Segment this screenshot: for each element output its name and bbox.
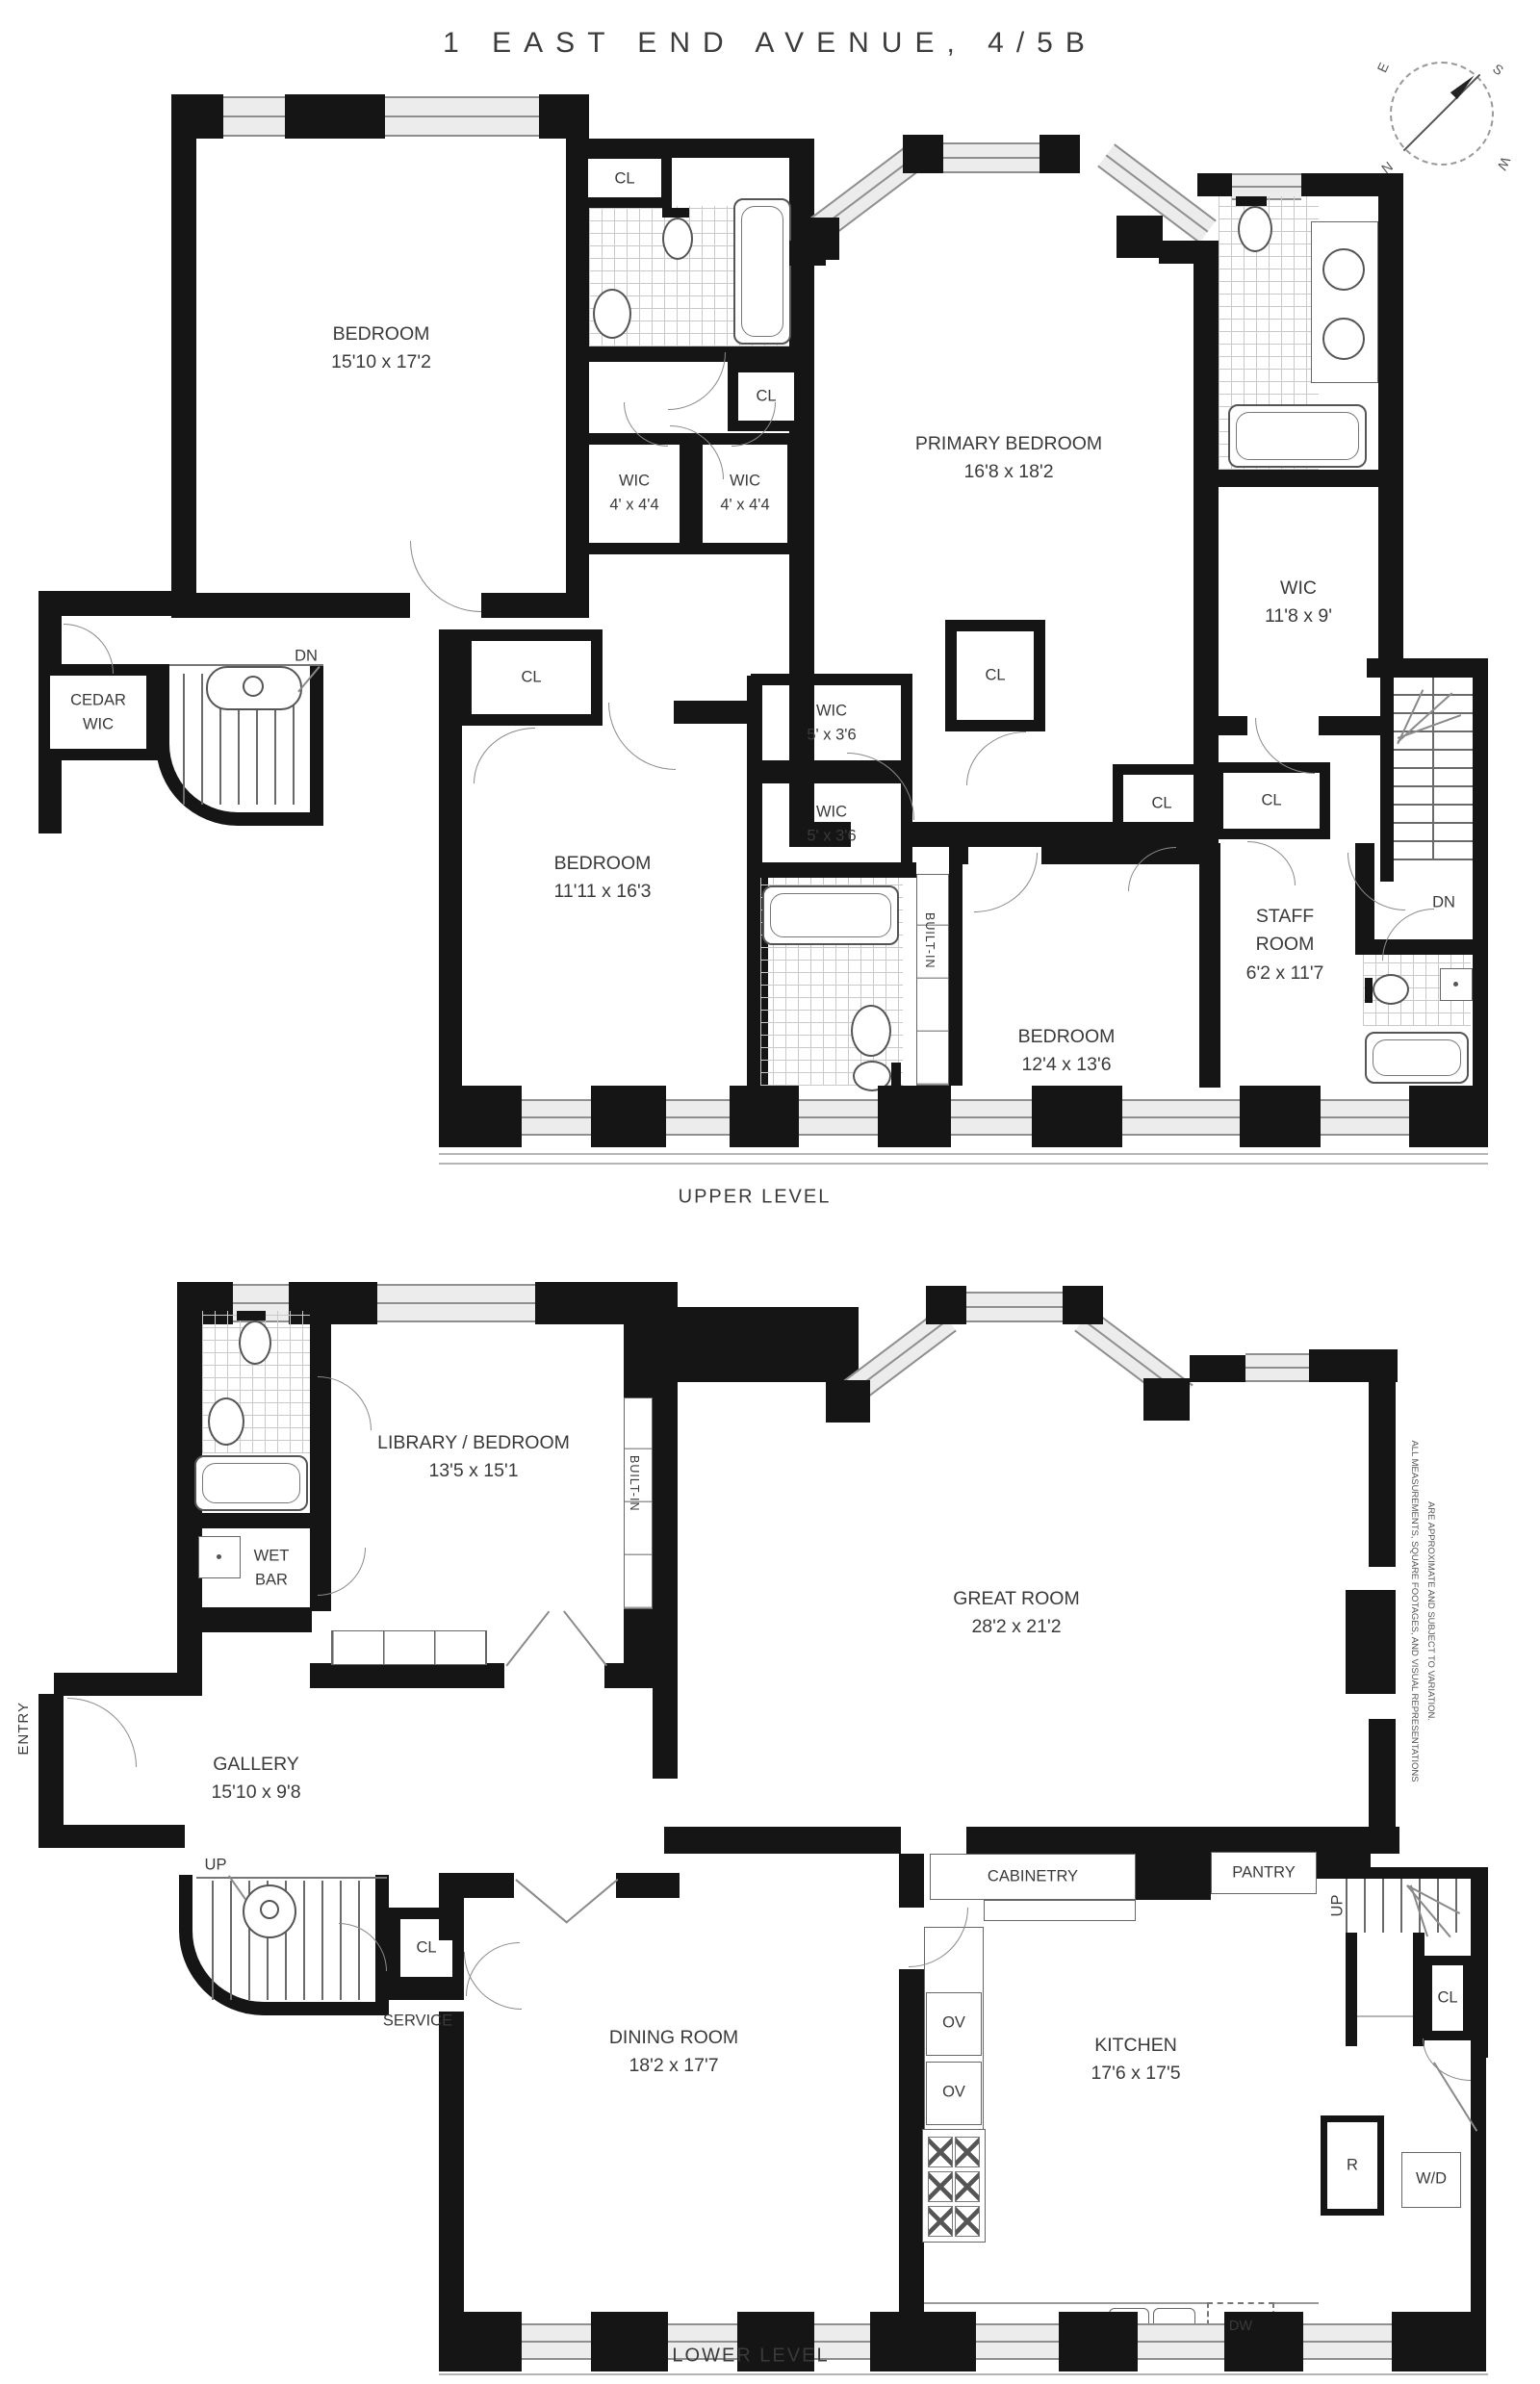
wic-label: WIC5' x 3'6 (807, 800, 856, 848)
wall (1380, 678, 1394, 882)
wall (1059, 2312, 1138, 2371)
door-arc (64, 624, 114, 674)
door-arc (1382, 909, 1434, 961)
wall (38, 1825, 185, 1848)
stair-label-up: UP (1326, 1895, 1350, 1917)
room-label-library-bedroom: LIBRARY / BEDROOM13'5 x 15'1 (377, 1429, 570, 1486)
window-sill (439, 1163, 1488, 1165)
level-label-lower: LOWER LEVEL (672, 2346, 829, 2368)
wall (949, 843, 962, 1086)
window (1245, 1353, 1309, 1382)
wall (624, 1309, 653, 1397)
wall (903, 135, 943, 173)
wall (1199, 843, 1220, 1088)
toilet (1373, 974, 1409, 1005)
burner-icon (928, 2171, 953, 2202)
door-arc (318, 1548, 366, 1596)
fireplace (1346, 1590, 1396, 1694)
wall (591, 1086, 666, 1147)
toilet-tank (662, 208, 689, 218)
room-label-bedroom-2: BEDROOM11'11 x 16'3 (553, 850, 651, 907)
wall (1143, 1378, 1190, 1421)
wall (481, 593, 589, 618)
stair-label-dn: DN (1432, 891, 1455, 915)
bathtub (1228, 404, 1367, 468)
level-label-upper: UPPER LEVEL (679, 1187, 832, 1209)
wall (539, 94, 589, 139)
door-arc (1423, 2038, 1471, 2081)
compass-e: E (1373, 60, 1391, 74)
wall (1159, 241, 1219, 264)
pantry-label: PANTRY (1232, 1861, 1295, 1885)
door-leaf (515, 1879, 568, 1923)
wall (38, 1694, 64, 1829)
wall (653, 1382, 678, 1669)
compass-s: S (1490, 61, 1506, 78)
window (522, 1099, 591, 1136)
room-label-great-room: GREAT ROOM28'2 x 21'2 (953, 1585, 1079, 1642)
cabinetry (984, 1900, 1136, 1921)
wall (1301, 173, 1390, 196)
wall (789, 241, 826, 266)
window-sill (439, 1153, 1488, 1155)
wall (878, 1086, 951, 1147)
closet-label: CL (416, 1936, 436, 1961)
bathtub (762, 885, 899, 945)
wall (439, 1086, 522, 1147)
wall (870, 2312, 976, 2371)
wall (926, 1286, 966, 1324)
bathtub (1365, 1032, 1469, 1084)
bathtub (733, 198, 791, 345)
stair-newel (260, 1900, 279, 1919)
toilet-tank (1236, 196, 1267, 206)
wall (1136, 1848, 1211, 1900)
wall (604, 1663, 654, 1688)
closet-label: CL (1437, 1987, 1457, 2011)
floor-plan-canvas: 1 EAST END AVENUE, 4/5B N E S W (0, 0, 1540, 2384)
window (1122, 1099, 1240, 1136)
door-arc (668, 352, 726, 410)
wall (1219, 716, 1247, 735)
wall (1219, 470, 1378, 487)
wall (38, 616, 62, 666)
toilet-tank (1365, 978, 1373, 1003)
toilet (1238, 206, 1272, 252)
stair-newel (243, 676, 264, 697)
stair-line (1357, 2015, 1413, 2017)
window-sill (439, 2373, 1488, 2375)
entry-arrow-icon (42, 1715, 64, 1740)
door-arc (67, 1698, 137, 1767)
stair-label-up: UP (205, 1854, 227, 1878)
washer-dryer-label: W/D (1416, 2167, 1447, 2192)
burner-icon (928, 2206, 953, 2237)
wall (899, 1854, 924, 1908)
wall (616, 1873, 680, 1898)
window (799, 1099, 878, 1136)
door-arc (410, 541, 481, 612)
wic-label: WIC4' x 4'4 (720, 469, 769, 517)
window (223, 96, 285, 137)
wall (177, 1607, 312, 1632)
wall (1346, 1933, 1357, 2046)
window (976, 2323, 1059, 2360)
built-in-cabinet (916, 874, 949, 1086)
wall (439, 2012, 464, 2314)
room-label-primary-bedroom: PRIMARY BEDROOM16'8 x 18'2 (915, 430, 1102, 487)
wall (1392, 2312, 1486, 2371)
bay-window (926, 142, 1045, 173)
room-label-cedar-wic: CEDARWIC (70, 688, 126, 736)
wall (591, 2312, 668, 2371)
disclaimer-text: ARE APPROXIMATE AND SUBJECT TO VARIATION… (1397, 1385, 1439, 1837)
window (1138, 2323, 1224, 2360)
sink (1322, 248, 1365, 291)
bathtub (194, 1455, 308, 1511)
wall (38, 591, 173, 616)
door-leaf (566, 1879, 619, 1923)
door-arc (1247, 841, 1296, 885)
closet-label: CL (985, 664, 1005, 688)
wall (439, 629, 462, 1086)
wall (1190, 1355, 1245, 1382)
stair-rail (1432, 678, 1434, 860)
sink (593, 289, 631, 339)
window-seat (331, 1630, 487, 1665)
wall (1471, 2058, 1486, 2312)
wall (1409, 1086, 1488, 1147)
wall (1193, 262, 1219, 843)
wall (54, 1673, 191, 1696)
room-label-bedroom-1: BEDROOM15'10 x 17'2 (331, 320, 431, 377)
built-in-label: BUILT-IN (628, 1455, 641, 1511)
wall (1309, 1349, 1398, 1382)
burner-icon (955, 2137, 980, 2167)
wall (664, 1827, 901, 1854)
wall (1032, 1086, 1122, 1147)
wic-label: WIC4' x 4'4 (609, 469, 658, 517)
closet-label: CL (614, 167, 634, 192)
wall (1346, 1867, 1488, 1879)
wall (674, 701, 751, 724)
wall (624, 1609, 653, 1665)
toilet (239, 1320, 271, 1365)
burner-icon (928, 2137, 953, 2167)
wall (310, 1663, 504, 1688)
wall (899, 1969, 924, 2314)
oven-label: OV (942, 2012, 965, 2036)
window (522, 2323, 591, 2360)
entry-label: ENTRY (15, 1702, 32, 1756)
closet-label: CL (756, 385, 776, 409)
window (377, 1284, 535, 1322)
door-arc (608, 703, 676, 770)
window (951, 1099, 1032, 1136)
wall (653, 1307, 859, 1382)
door-arc (318, 1376, 372, 1430)
room-label-kitchen: KITCHEN17'6 x 17'5 (1091, 2032, 1180, 2089)
wall (439, 2312, 522, 2371)
toilet (662, 218, 693, 260)
door-leaf (505, 1611, 550, 1667)
built-in-label: BUILT-IN (923, 912, 937, 968)
stair-label-dn: DN (295, 645, 318, 669)
refrigerator-label: R (1347, 2154, 1358, 2178)
wall (1197, 173, 1232, 196)
closet-label: CL (1151, 792, 1171, 816)
door-arc (474, 728, 535, 783)
burner-icon (955, 2171, 980, 2202)
dishwasher-label: DW (1229, 2317, 1252, 2338)
sink (208, 1397, 244, 1446)
compass-w: W (1495, 155, 1514, 173)
wall (1063, 1286, 1103, 1324)
wall (439, 1873, 464, 1940)
wall (38, 758, 62, 833)
wall (171, 94, 196, 616)
room-label-gallery: GALLERY15'10 x 9'8 (211, 1751, 300, 1807)
wall (1369, 1382, 1396, 1567)
wall (1378, 173, 1403, 662)
wall (1039, 135, 1080, 173)
wall (912, 822, 1195, 847)
wall (1319, 716, 1390, 735)
room-label-dining-room: DINING ROOM18'2 x 17'7 (609, 2024, 738, 2081)
page-title: 1 EAST END AVENUE, 4/5B (443, 27, 1097, 60)
sink (851, 1005, 891, 1057)
window (1303, 2323, 1392, 2360)
wic-label: WIC5' x 3'6 (807, 699, 856, 747)
wall (1473, 658, 1488, 1115)
door-arc (464, 1952, 522, 2010)
wall (171, 593, 410, 618)
door-arc (966, 731, 1026, 785)
window (385, 96, 539, 137)
cabinetry-label: CABINETRY (988, 1865, 1078, 1889)
window (1321, 1099, 1409, 1136)
wall (730, 1086, 799, 1147)
wall (389, 1985, 464, 2000)
closet-label: CL (1261, 789, 1281, 813)
oven-label: OV (942, 2081, 965, 2105)
sink (1322, 318, 1365, 360)
room-label-wic-11: WIC11'8 x 9' (1265, 575, 1332, 631)
wall (789, 433, 814, 847)
wall (1116, 216, 1163, 258)
service-label: SERVICE (383, 2010, 452, 2034)
wall (285, 94, 385, 139)
door-arc (974, 853, 1038, 912)
sink-drain (1453, 982, 1458, 987)
toilet-tank (237, 1311, 266, 1320)
wall (826, 1380, 870, 1423)
wall (1240, 1086, 1321, 1147)
wall (1471, 1867, 1488, 2058)
wall (189, 1513, 312, 1528)
burner-icon (955, 2206, 980, 2237)
room-label-staff-room: STAFFROOM6'2 x 11'7 (1246, 903, 1324, 987)
window (666, 1099, 730, 1136)
closet-label: CL (521, 666, 541, 690)
door-leaf (563, 1611, 607, 1667)
wall (653, 1669, 678, 1779)
wet-bar-label: WETBAR (254, 1544, 290, 1592)
room-label-bedroom-3: BEDROOM12'4 x 13'6 (1018, 1023, 1116, 1080)
sink-drain (217, 1554, 221, 1559)
wall (751, 862, 916, 878)
